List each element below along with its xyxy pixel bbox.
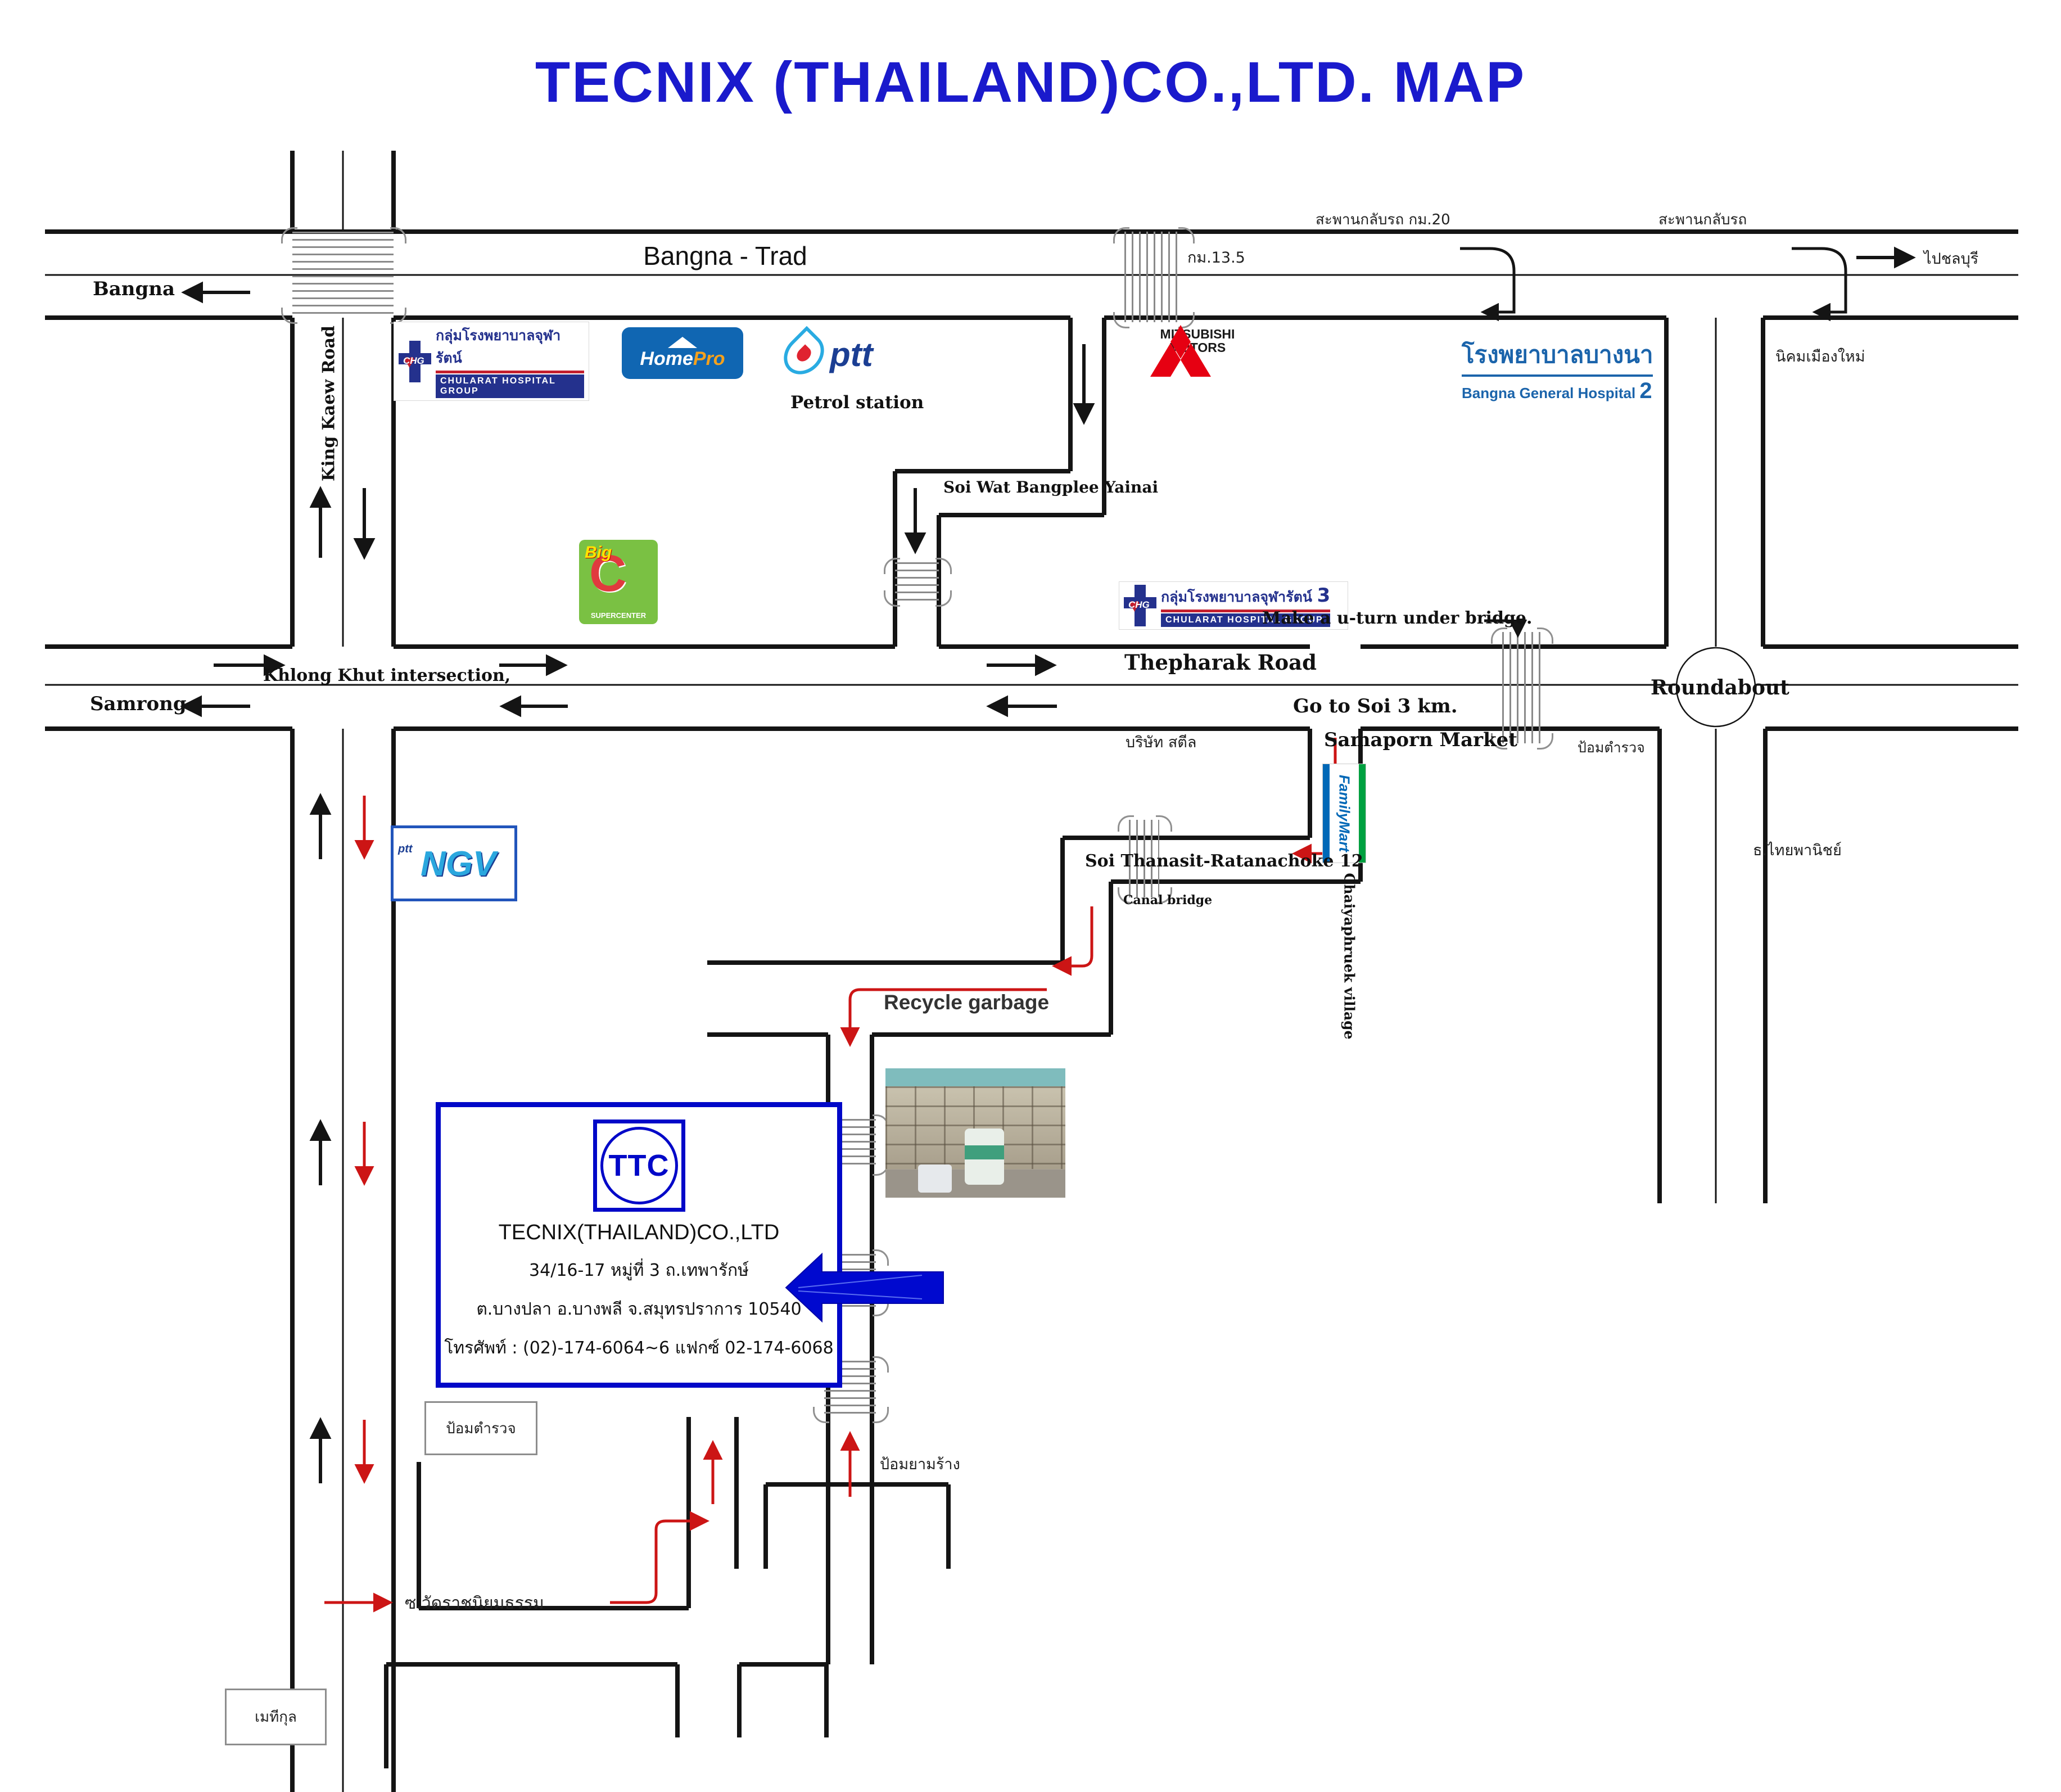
homepro-home: Home — [640, 348, 693, 369]
label-uturn-bridge: สะพานกลับรถ — [1658, 208, 1747, 231]
chularat-hospital-logo: ♥ CHG กลุ่มโรงพยาบาลจุฬารัตน์ CHULARAT H… — [394, 322, 589, 401]
label-petrol-station: Petrol station — [790, 392, 924, 413]
homepro-roof-icon — [668, 337, 697, 348]
label-to-chonburi: ไปชลบุรี — [1924, 246, 1978, 270]
police-box-text: ป้อมตำรวจ — [446, 1417, 516, 1440]
ttc-logo-icon: TTC — [593, 1120, 685, 1212]
company-address-1: 34/16-17 หมู่ที่ 3 ถ.เทพารักษ์ — [529, 1257, 749, 1284]
ttc-company-box: TTC TECNIX(THAILAND)CO.,LTD 34/16-17 หมู… — [436, 1102, 842, 1388]
label-uturn-km20: สะพานกลับรถ กม.20 — [1316, 208, 1450, 231]
homepro-pro: Pro — [693, 348, 725, 369]
map-canvas: TECNIX (THAILAND)CO.,LTD. MAP Bangna - T… — [0, 0, 2061, 1792]
chg3-cross-icon: ♥ CHG — [1124, 585, 1156, 626]
label-methikul: เมทีกุล — [225, 1689, 327, 1745]
ngv-text: NGV — [421, 844, 496, 884]
blue-arrow-to-ttc — [781, 1248, 950, 1327]
label-steel-company: บริษัท สตีล — [1126, 730, 1196, 754]
bangna-hospital-number: 2 — [1639, 378, 1652, 403]
methikul-text: เมทีกุล — [255, 1705, 297, 1728]
arrow-uturn-km20 — [1460, 249, 1514, 312]
chg-cross-icon: ♥ CHG — [399, 341, 431, 382]
road-label-soi-wat-ratniyomtham: ซ.วัดราชนิยมธรรม — [405, 1590, 544, 1617]
chularat3-branch-number: 3 — [1317, 584, 1331, 607]
label-abandoned-guard-post: ป้อมยามร้าง — [880, 1452, 960, 1476]
label-roundabout: Roundabout — [1651, 676, 1789, 699]
chg-abbr: CHG — [403, 355, 424, 367]
ptt-ngv-logo: ptt NGV — [391, 825, 517, 901]
chg3-abbr: CHG — [1128, 599, 1150, 611]
bangna-hospital-logo: โรงพยาบาลบางนา Bangna General Hospital 2 — [1462, 336, 1664, 404]
chularat-en-text: CHULARAT HOSPITAL GROUP — [436, 374, 584, 398]
ngv-ptt-text: ptt — [398, 843, 413, 856]
chularat3-thai-text: กลุ่มโรงพยาบาลจุฬารัตน์ — [1161, 589, 1312, 605]
familymart-blue-bar — [1323, 764, 1330, 863]
label-police-box-ttc: ป้อมตำรวจ — [424, 1401, 537, 1455]
company-name: TECNIX(THAILAND)CO.,LTD — [499, 1221, 780, 1245]
familymart-logo: FamilyMart — [1322, 764, 1366, 863]
road-label-soi-wat-bangplee: Soi Wat Bangplee Yainai — [943, 478, 1158, 496]
label-recycle-garbage: Recycle garbage — [884, 991, 1049, 1014]
bangna-hospital-en: Bangna General Hospital — [1462, 385, 1635, 401]
road-label-bangna: Bangna — [93, 278, 175, 300]
label-canal-bridge: Canal bridge — [1123, 893, 1212, 908]
label-chaiyaphruek-village: Chaiyaphruek village — [1341, 873, 1358, 1019]
label-make-uturn: Make a u-turn under bridge. — [1262, 608, 1532, 628]
road-label-king-kaew: King Kaew Road — [319, 317, 339, 491]
label-nikhom-mueang-mai: นิคมเมืองใหม่ — [1775, 344, 1865, 368]
arrow-uturn-bridge — [1792, 249, 1846, 312]
mitsubishi-diamonds-icon — [1147, 325, 1214, 387]
bangna-hospital-thai: โรงพยาบาลบางนา — [1462, 336, 1664, 373]
bigc-supercenter: SUPERCENTER — [579, 611, 658, 620]
recycle-garbage-photo — [885, 1068, 1065, 1198]
red-arrow-bottom-route — [610, 1521, 706, 1603]
road-label-samrong: Samrong — [90, 693, 187, 715]
company-address-2: ต.บางปลา อ.บางพลี จ.สมุทรปราการ 10540 — [476, 1296, 801, 1322]
road-label-soi-thanasit: Soi Thanasit-Ratanachoke 12 — [1085, 851, 1363, 871]
ptt-text: ptt — [830, 335, 873, 374]
ptt-logo: ptt — [786, 329, 955, 380]
ttc-logo-text: TTC — [609, 1148, 670, 1183]
label-khlong-khut: Khlong Khut intersection, — [263, 666, 510, 685]
chularat-thai-text: กลุ่มโรงพยาบาลจุฬารัตน์ — [436, 324, 584, 369]
label-samaporn-market: Samaporn Market — [1324, 729, 1517, 751]
label-km-13-5: กม.13.5 — [1187, 245, 1245, 269]
label-police-box-roundabout: ป้อมตำรวจ — [1578, 737, 1645, 759]
familymart-green-bar — [1359, 764, 1366, 863]
homepro-logo: HomePro — [622, 327, 743, 379]
road-label-bangna-trad: Bangna - Trad — [618, 241, 832, 271]
red-arrow-soi-west-turn — [1056, 906, 1092, 966]
label-thai-panich-bank: ธ.ไทยพานิชย์ — [1753, 838, 1842, 862]
bigc-logo: C Big SUPERCENTER — [579, 540, 658, 624]
label-go-to-soi: Go to Soi 3 km. — [1293, 695, 1458, 717]
route-arrows — [0, 0, 2061, 1792]
company-phone: โทรศัพท์ : (02)-174-6064~6 แฟกซ์ 02-174-… — [444, 1335, 833, 1361]
road-label-thepharak: Thepharak Road — [1124, 650, 1317, 675]
bigc-big: Big — [585, 543, 612, 562]
familymart-text: FamilyMart — [1336, 766, 1353, 861]
mitsubishi-logo: MITSUBISHI MOTORS — [1147, 325, 1248, 354]
